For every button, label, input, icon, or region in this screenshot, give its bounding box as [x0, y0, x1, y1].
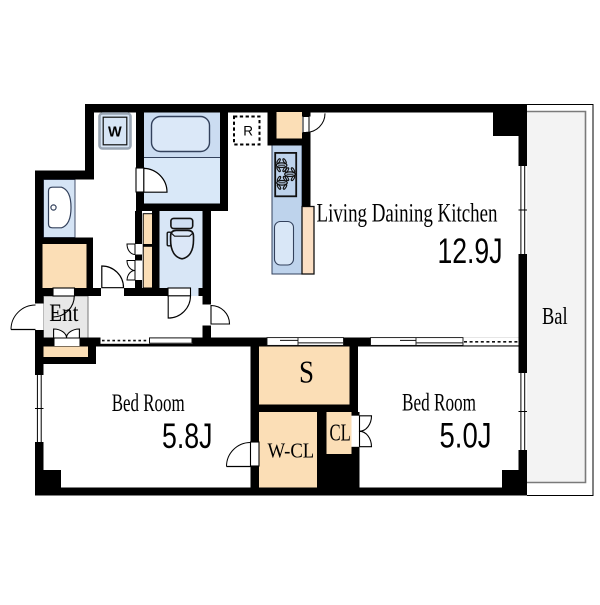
svg-text:Bed Room: Bed Room	[112, 390, 185, 417]
svg-text:Bed Room: Bed Room	[402, 390, 476, 417]
svg-text:Bal: Bal	[542, 304, 568, 330]
svg-text:CL: CL	[330, 420, 351, 447]
svg-text:5.0J: 5.0J	[440, 415, 492, 455]
svg-text:12.9J: 12.9J	[438, 231, 503, 271]
svg-text:W: W	[108, 124, 123, 141]
svg-text:S: S	[299, 354, 314, 390]
svg-text:R: R	[243, 124, 253, 139]
svg-text:Living Daining Kitchen: Living Daining Kitchen	[317, 199, 498, 228]
svg-text:5.8J: 5.8J	[162, 416, 213, 456]
svg-text:W-CL: W-CL	[268, 439, 315, 463]
